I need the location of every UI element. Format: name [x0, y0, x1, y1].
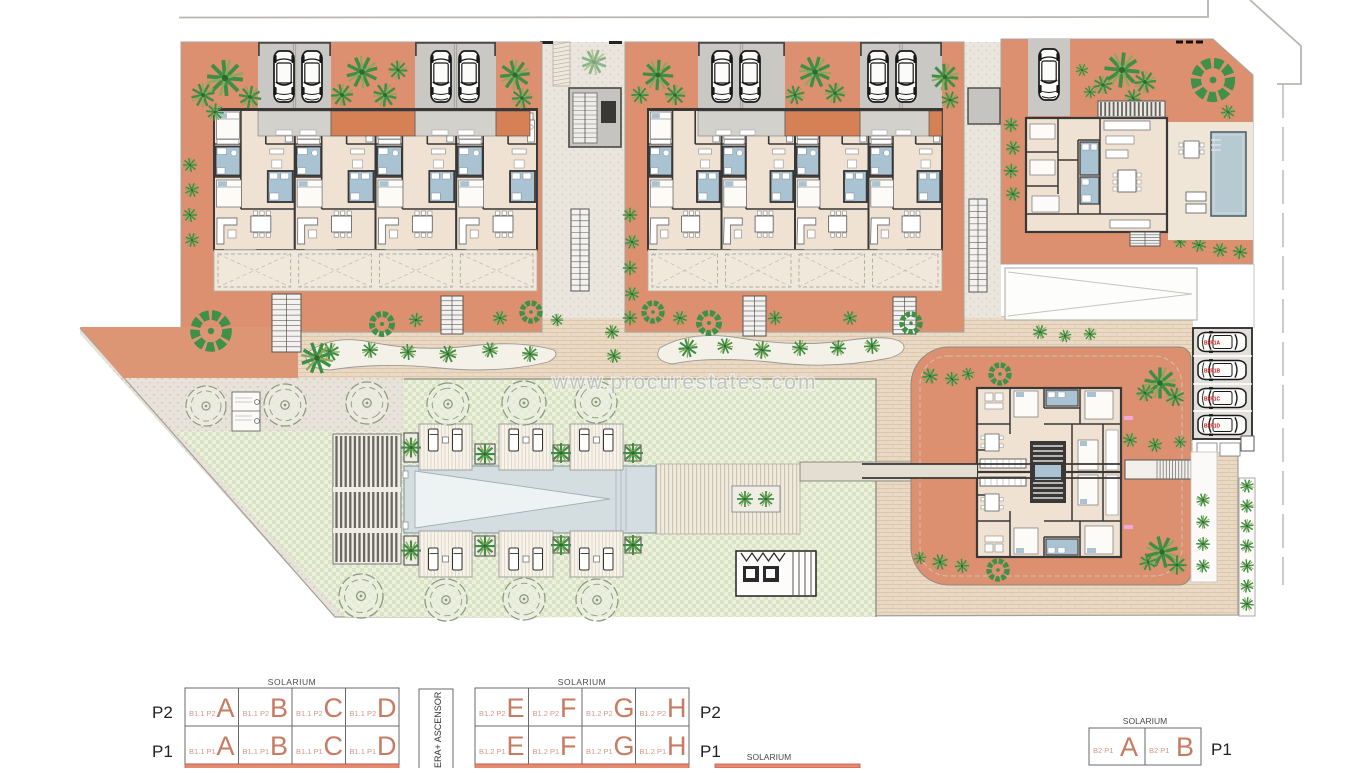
svg-text:B2P1B: B2P1B — [1204, 369, 1221, 375]
svg-text:E: E — [507, 731, 525, 761]
svg-text:B1.1 P1: B1.1 P1 — [189, 747, 216, 756]
svg-text:ERA+ ASCENSOR: ERA+ ASCENSOR — [433, 691, 443, 768]
svg-text:A: A — [217, 731, 235, 761]
svg-text:B2 P1: B2 P1 — [1149, 746, 1169, 755]
svg-text:C: C — [324, 731, 344, 761]
svg-text:B1.1 P2: B1.1 P2 — [243, 709, 270, 718]
svg-text:A: A — [1120, 732, 1138, 762]
svg-text:B1.2 P2: B1.2 P2 — [533, 709, 560, 718]
svg-text:B1.1 P2: B1.1 P2 — [350, 709, 377, 718]
svg-text:P1: P1 — [1211, 740, 1232, 759]
svg-text:B1.1 P1: B1.1 P1 — [296, 747, 323, 756]
svg-text:SOLARIUM: SOLARIUM — [558, 677, 606, 687]
svg-text:P2: P2 — [700, 703, 721, 722]
svg-text:B1.2 P1: B1.2 P1 — [479, 747, 506, 756]
svg-text:P2: P2 — [152, 703, 173, 722]
svg-text:SOLARIUM: SOLARIUM — [268, 677, 316, 687]
svg-text:D: D — [377, 731, 397, 761]
svg-text:H: H — [667, 731, 687, 761]
svg-text:B1.2 P1: B1.2 P1 — [533, 747, 560, 756]
svg-text:D: D — [377, 693, 397, 723]
svg-text:B2P1A: B2P1A — [1204, 341, 1221, 347]
svg-text:F: F — [560, 731, 577, 761]
svg-text:B1.1 P2: B1.1 P2 — [189, 709, 216, 718]
svg-text:B1.2 P1: B1.2 P1 — [640, 747, 667, 756]
svg-text:A: A — [217, 693, 235, 723]
svg-text:B: B — [270, 693, 288, 723]
svg-text:B2P1D: B2P1D — [1204, 424, 1221, 430]
svg-text:B: B — [1176, 732, 1194, 762]
svg-text:SOLARIUM: SOLARIUM — [747, 752, 791, 762]
svg-text:B1.1 P2: B1.1 P2 — [296, 709, 323, 718]
svg-text:B1.1 P1: B1.1 P1 — [350, 747, 377, 756]
svg-text:B1.2 P2: B1.2 P2 — [640, 709, 667, 718]
svg-text:B1.2 P2: B1.2 P2 — [479, 709, 506, 718]
svg-text:E: E — [507, 693, 525, 723]
svg-text:B1.2 P2: B1.2 P2 — [586, 709, 613, 718]
svg-text:SOLARIUM: SOLARIUM — [1123, 716, 1167, 726]
svg-text:G: G — [614, 731, 635, 761]
svg-text:B: B — [270, 731, 288, 761]
svg-text:B1.2 P1: B1.2 P1 — [586, 747, 613, 756]
svg-text:P1: P1 — [152, 742, 173, 761]
svg-text:B1.1 P1: B1.1 P1 — [243, 747, 270, 756]
svg-text:H: H — [667, 693, 687, 723]
svg-text:P1: P1 — [700, 742, 721, 761]
svg-text:www.procurestates.com: www.procurestates.com — [552, 371, 818, 394]
svg-text:F: F — [560, 693, 577, 723]
svg-text:C: C — [324, 693, 344, 723]
svg-text:B2 P1: B2 P1 — [1093, 746, 1113, 755]
svg-text:B2P1C: B2P1C — [1204, 397, 1221, 403]
svg-text:G: G — [614, 693, 635, 723]
